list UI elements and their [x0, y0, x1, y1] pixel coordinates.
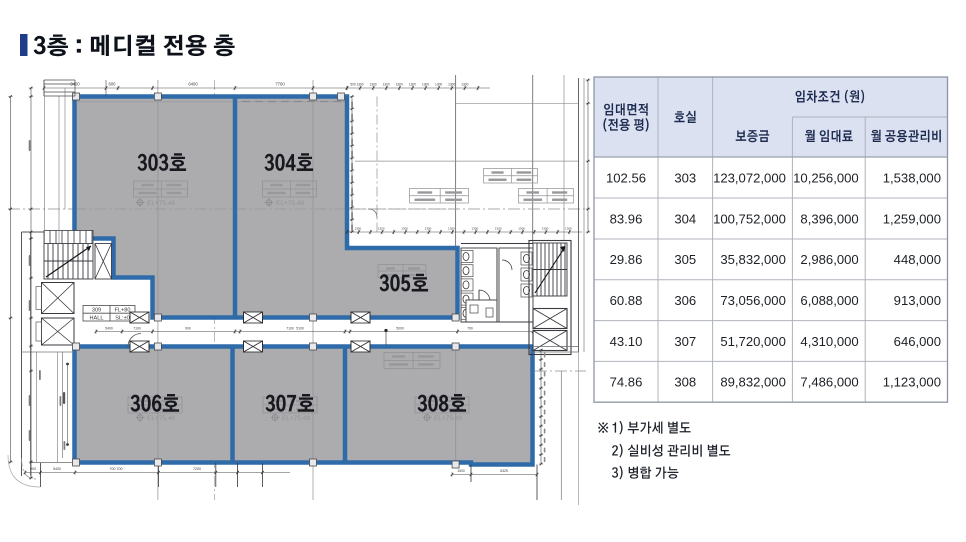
svg-text:10,256,000: 10,256,000 — [793, 170, 859, 185]
svg-text:SL:±0: SL:±0 — [115, 315, 130, 321]
svg-text:1300: 1300 — [383, 83, 390, 87]
svg-text:5400: 5400 — [105, 327, 113, 331]
svg-text:4,310,000: 4,310,000 — [800, 334, 858, 349]
svg-text:7700: 7700 — [275, 82, 285, 87]
svg-text:303: 303 — [674, 170, 696, 185]
svg-text:43.10: 43.10 — [610, 334, 643, 349]
svg-text:7200: 7200 — [193, 467, 201, 471]
svg-text:EL+75.48: EL+75.48 — [147, 415, 175, 422]
svg-text:74.86: 74.86 — [610, 375, 643, 390]
svg-text:308: 308 — [674, 375, 696, 390]
svg-text:790: 790 — [467, 327, 473, 331]
svg-text:6400: 6400 — [188, 82, 198, 87]
svg-text:6,088,000: 6,088,000 — [800, 293, 858, 308]
svg-text:1300: 1300 — [448, 83, 455, 87]
svg-text:1300: 1300 — [409, 83, 416, 87]
svg-text:1500: 1500 — [457, 469, 465, 473]
svg-text:1300: 1300 — [435, 83, 442, 87]
svg-text:1300: 1300 — [401, 227, 408, 231]
svg-text:1300: 1300 — [396, 83, 403, 87]
svg-text:7100: 7100 — [133, 327, 141, 331]
svg-text:1300: 1300 — [542, 227, 549, 231]
svg-text:646,000: 646,000 — [894, 334, 941, 349]
svg-text:900: 900 — [30, 467, 36, 471]
svg-text:1300: 1300 — [518, 227, 525, 231]
svg-text:307: 307 — [674, 334, 696, 349]
svg-text:HALL: HALL — [90, 315, 104, 321]
svg-text:913,000: 913,000 — [894, 293, 941, 308]
svg-text:309: 309 — [92, 308, 101, 314]
svg-text:2,986,000: 2,986,000 — [800, 252, 858, 267]
svg-text:5000: 5000 — [396, 327, 404, 331]
svg-text:1300: 1300 — [378, 227, 385, 231]
svg-text:1,123,000: 1,123,000 — [883, 375, 941, 390]
svg-text:305: 305 — [674, 252, 696, 267]
svg-text:7,486,000: 7,486,000 — [800, 375, 858, 390]
svg-text:304: 304 — [674, 211, 696, 226]
svg-text:1300: 1300 — [565, 227, 572, 231]
svg-text:5100: 5100 — [296, 327, 304, 331]
svg-text:448,000: 448,000 — [894, 252, 941, 267]
svg-text:700 700: 700 700 — [110, 467, 123, 471]
svg-text:1300: 1300 — [471, 227, 478, 231]
svg-text:102.56: 102.56 — [606, 170, 646, 185]
svg-text:EL+75.48: EL+75.48 — [276, 200, 304, 207]
svg-text:7100: 7100 — [286, 327, 294, 331]
svg-text:1300: 1300 — [461, 83, 468, 87]
svg-text:1300: 1300 — [354, 227, 361, 231]
svg-text:100,752,000: 100,752,000 — [713, 211, 786, 226]
svg-text:1300: 1300 — [495, 227, 502, 231]
svg-text:1300: 1300 — [370, 83, 377, 87]
svg-text:35,832,000: 35,832,000 — [720, 252, 786, 267]
svg-text:5400: 5400 — [53, 467, 61, 471]
svg-text:500: 500 — [350, 83, 356, 87]
svg-text:6325: 6325 — [500, 469, 508, 473]
svg-text:900: 900 — [185, 327, 191, 331]
svg-text:1,259,000: 1,259,000 — [883, 211, 941, 226]
svg-text:8,396,000: 8,396,000 — [800, 211, 858, 226]
svg-text:EL+75.48: EL+75.48 — [147, 200, 175, 207]
svg-text:600: 600 — [109, 82, 117, 87]
svg-text:EL+75.48: EL+75.48 — [434, 415, 462, 422]
svg-text:1300: 1300 — [425, 227, 432, 231]
svg-text:51,720,000: 51,720,000 — [720, 334, 786, 349]
svg-text:1,538,000: 1,538,000 — [883, 170, 941, 185]
svg-text:123,072,000: 123,072,000 — [713, 170, 786, 185]
svg-text:60.88: 60.88 — [610, 293, 643, 308]
svg-text:1300: 1300 — [448, 227, 455, 231]
svg-text:1300: 1300 — [422, 83, 429, 87]
svg-text:EL+75.48: EL+75.48 — [282, 415, 310, 422]
svg-text:306: 306 — [674, 293, 696, 308]
svg-text:83.96: 83.96 — [610, 211, 643, 226]
svg-text:FL+80: FL+80 — [114, 308, 130, 314]
svg-text:1300: 1300 — [356, 83, 363, 87]
svg-text:89,832,000: 89,832,000 — [720, 375, 786, 390]
svg-text:73,056,000: 73,056,000 — [720, 293, 786, 308]
svg-text:29.86: 29.86 — [610, 252, 643, 267]
